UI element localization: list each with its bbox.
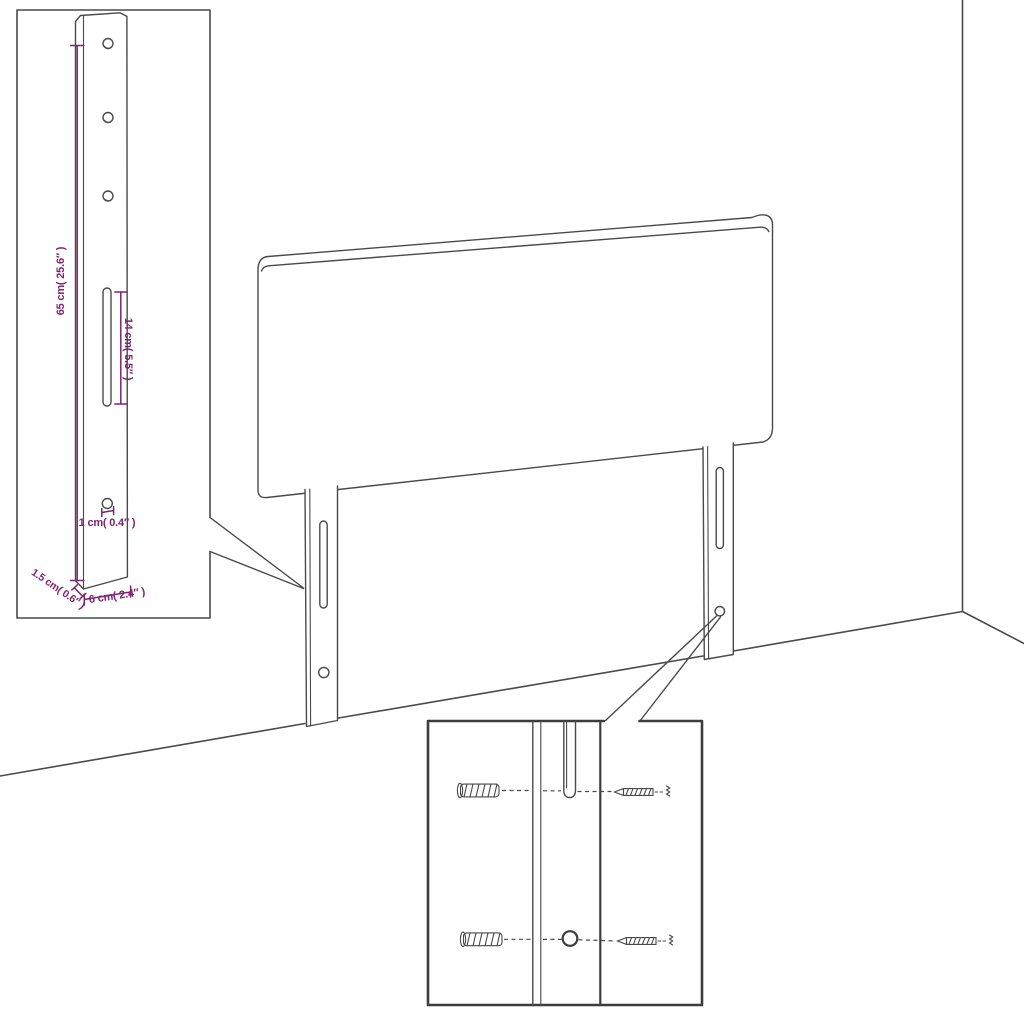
dim-label-hole: 1 cm( 0.4″ ) bbox=[79, 517, 136, 529]
bracket-callout-lines bbox=[210, 518, 304, 589]
bracket-drawing bbox=[76, 13, 128, 589]
floor-line-right bbox=[963, 612, 1024, 644]
mounting-callout-lines bbox=[605, 616, 721, 722]
headboard-panel bbox=[258, 215, 773, 498]
dim-label-height: 65 cm( 25.6″ ) bbox=[55, 247, 67, 316]
line-art bbox=[0, 0, 1024, 1024]
left-leg bbox=[305, 486, 338, 727]
mounting-detail-inset bbox=[428, 616, 721, 1006]
assembly-diagram: 65 cm( 25.6″ ) 14 cm( 5.5″ ) 1 cm( 0.4″ … bbox=[0, 0, 1024, 1024]
dim-label-slot: 14 cm( 5.5″ ) bbox=[122, 318, 134, 381]
right-leg bbox=[703, 443, 733, 660]
